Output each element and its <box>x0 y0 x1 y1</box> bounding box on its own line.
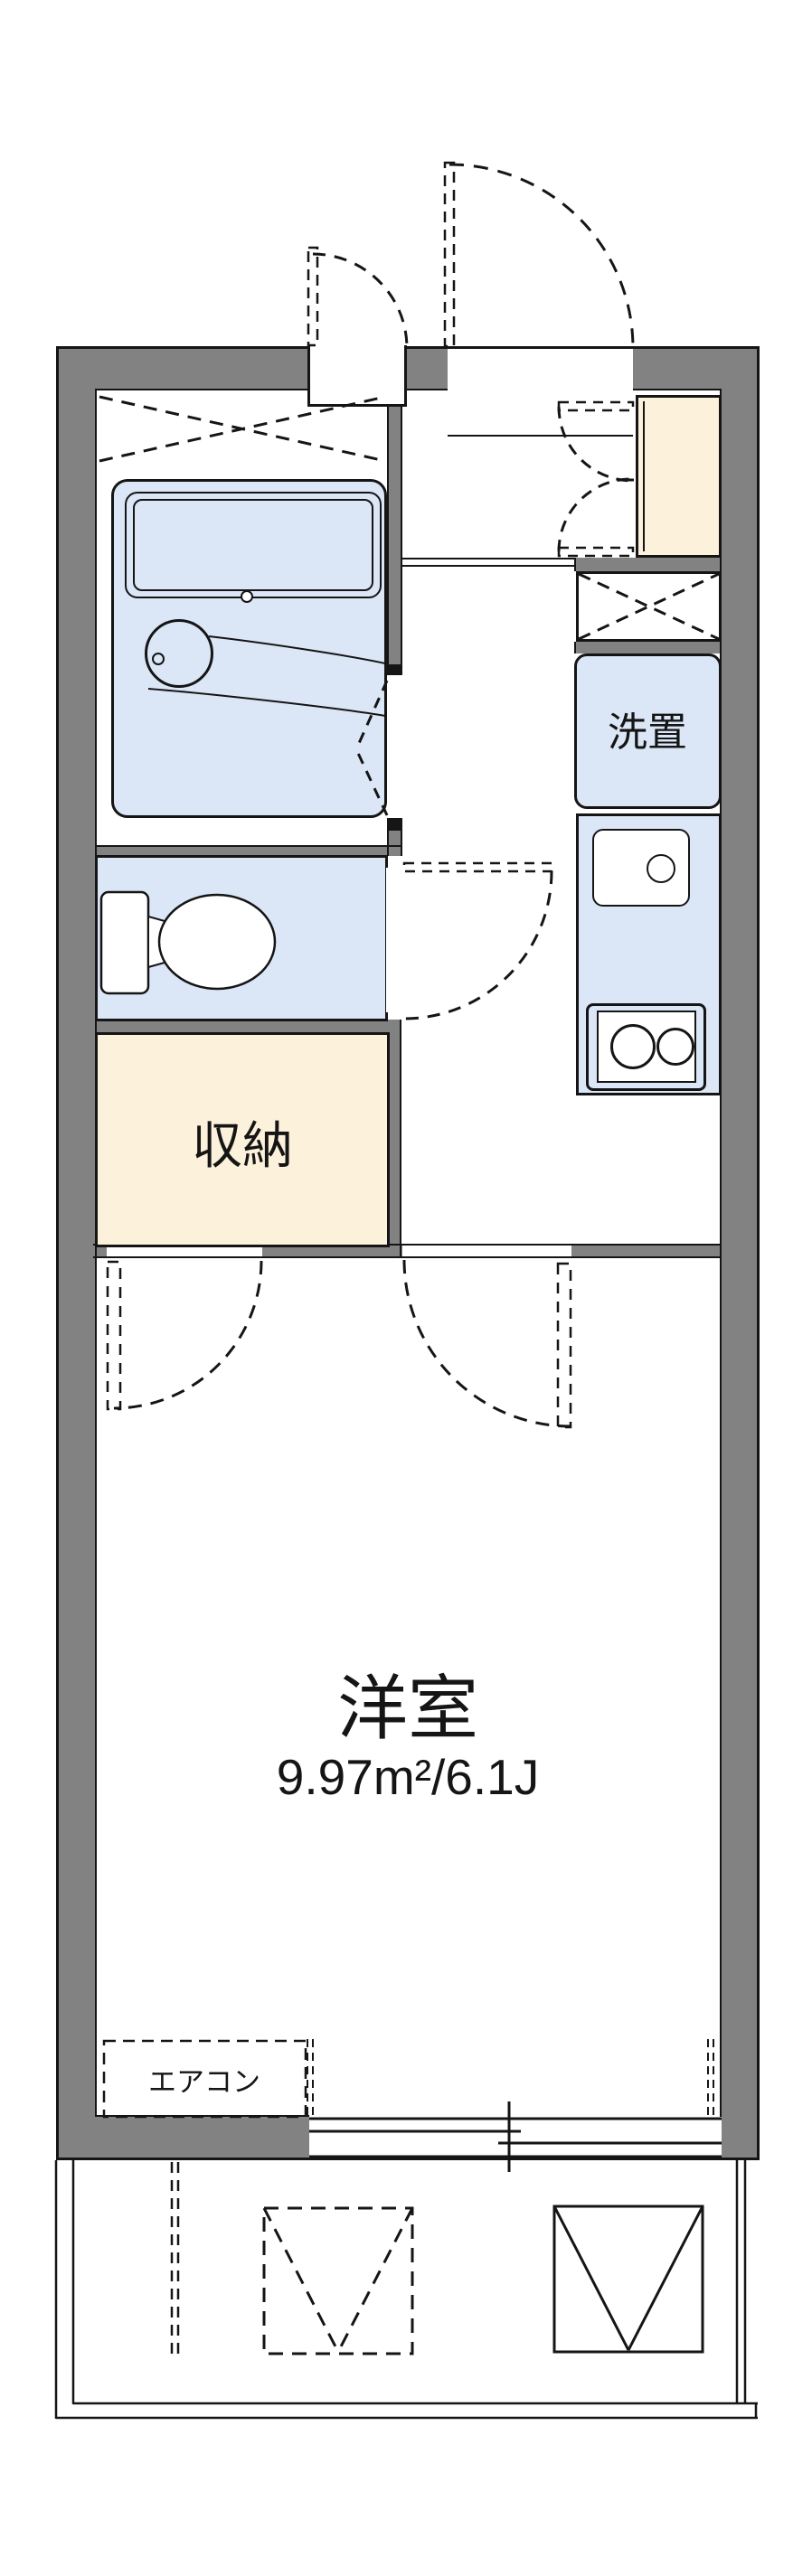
balcony-rails <box>56 2160 758 2419</box>
entrance-door-arc <box>449 165 633 348</box>
edge <box>633 389 722 390</box>
shoe-cabinet <box>636 395 722 558</box>
edge <box>387 389 389 664</box>
burner-right <box>656 1028 694 1066</box>
entrance-opening <box>448 349 633 389</box>
balcony-partition <box>172 2162 178 2355</box>
burner-left <box>610 1024 656 1069</box>
edge <box>574 558 576 571</box>
edge <box>387 831 389 856</box>
meter-box-niche <box>307 345 407 407</box>
floor-plan: 洋室 9.97m²/6.1J 収納 洗置 エアコン <box>0 0 812 2576</box>
meterbox-door-leaf <box>308 248 317 345</box>
kitchen-faucet <box>647 854 675 883</box>
bathtub-inner <box>133 499 373 591</box>
edge <box>407 389 448 390</box>
edge <box>97 845 401 847</box>
entrance-door-leaf <box>445 163 454 346</box>
hatch-solid-box <box>554 2206 703 2352</box>
hatch-dashed-box <box>264 2208 412 2354</box>
storage-label: 収納 <box>125 1110 360 1173</box>
main-room-area: 9.97m²/6.1J <box>209 1746 607 1808</box>
hatch-solid-v <box>554 2206 703 2350</box>
toilet-doorway <box>386 868 402 1012</box>
basin-faucet <box>152 653 165 665</box>
edge <box>720 389 722 2117</box>
edge <box>400 1020 401 1258</box>
edge <box>95 2115 309 2117</box>
door-jamb-cap-bottom <box>387 818 402 831</box>
upper-cabinet-box <box>576 571 722 642</box>
door-jamb-cap-top <box>387 664 402 675</box>
edge <box>401 389 402 664</box>
edge <box>93 1256 722 1258</box>
edge <box>97 389 307 390</box>
edge <box>574 642 576 653</box>
shoe-cabinet-inner-line <box>643 401 645 551</box>
room-door-opening <box>402 1246 571 1256</box>
edge <box>95 389 97 2117</box>
aircon-label: エアコン <box>109 2064 300 2094</box>
bathtub-drain <box>241 590 253 603</box>
toilet-room <box>95 855 388 1021</box>
main-room-name: 洋室 <box>263 1661 552 1744</box>
hatch-dashed-v <box>264 2208 412 2352</box>
edge <box>401 831 402 856</box>
meterbox-door-arc <box>313 254 407 348</box>
washer-label: 洗置 <box>575 705 720 752</box>
